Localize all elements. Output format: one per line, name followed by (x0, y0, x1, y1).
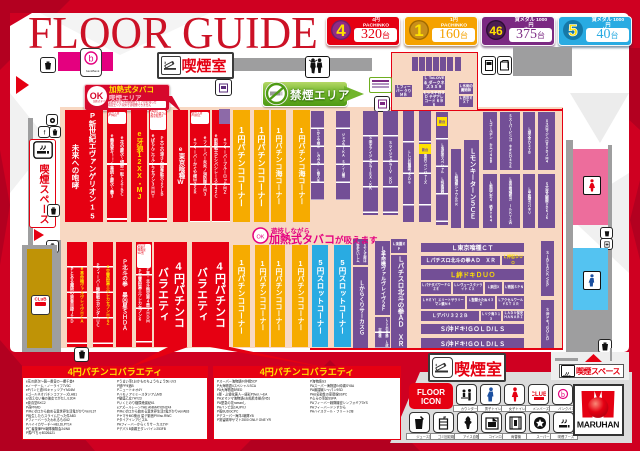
svg-text:OK: OK (257, 235, 265, 241)
svg-text:b: b (561, 392, 565, 399)
svg-text:MARUHAN: MARUHAN (577, 420, 619, 430)
svg-text:5: 5 (568, 21, 577, 40)
svg-text:f: f (43, 130, 45, 136)
svg-text:1: 1 (414, 21, 423, 40)
svg-text:4: 4 (336, 21, 346, 40)
svg-text:46: 46 (489, 24, 503, 38)
svg-text:b: b (88, 54, 93, 64)
